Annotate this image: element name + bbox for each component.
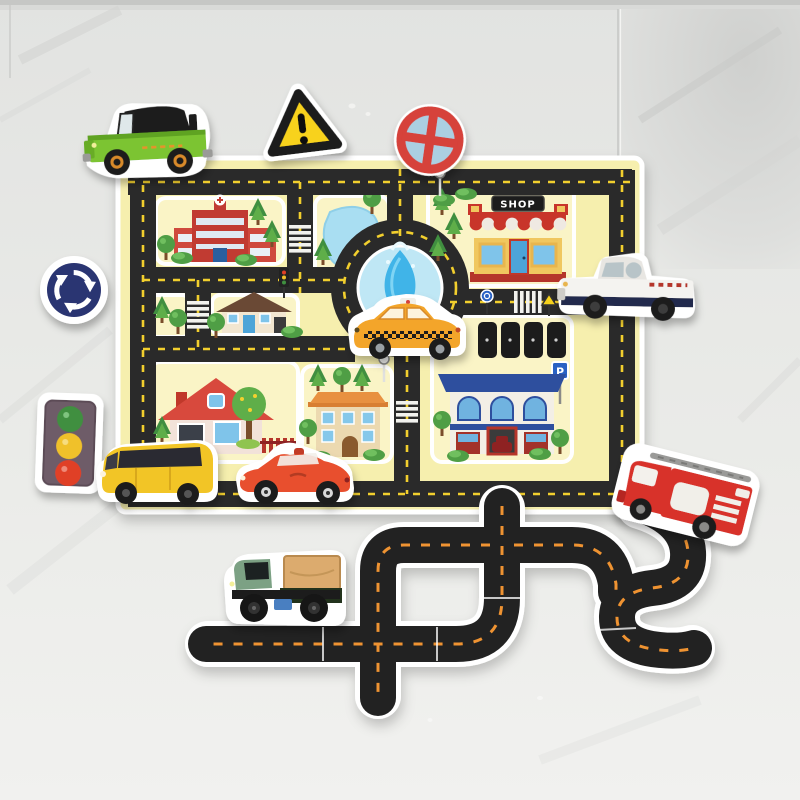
minibus-headlight [100, 471, 106, 477]
yellow-minibus-sticker [96, 440, 218, 505]
shop-door [510, 240, 528, 274]
photo-bath-toy-road-scene: SHOP P [0, 0, 800, 800]
shop-window [480, 244, 504, 266]
shop-sign-text: SHOP [500, 200, 535, 211]
green-cargo-truck-sticker [224, 550, 346, 626]
shop-window [532, 244, 556, 266]
tile-seam-top [0, 0, 800, 5]
fuel-tank [274, 599, 292, 610]
parked-red-car [492, 442, 512, 452]
traffic-light-sticker [35, 392, 104, 494]
apartment-door [342, 436, 358, 457]
garage-arched-windows [458, 397, 546, 420]
roundabout-sign-sticker [40, 256, 108, 324]
garage-building [433, 374, 569, 462]
scene-canvas: SHOP P [0, 0, 800, 800]
truck-cab-window [244, 562, 269, 580]
jeep-windshield [116, 113, 134, 136]
tile-dark-top-right [618, 9, 800, 269]
